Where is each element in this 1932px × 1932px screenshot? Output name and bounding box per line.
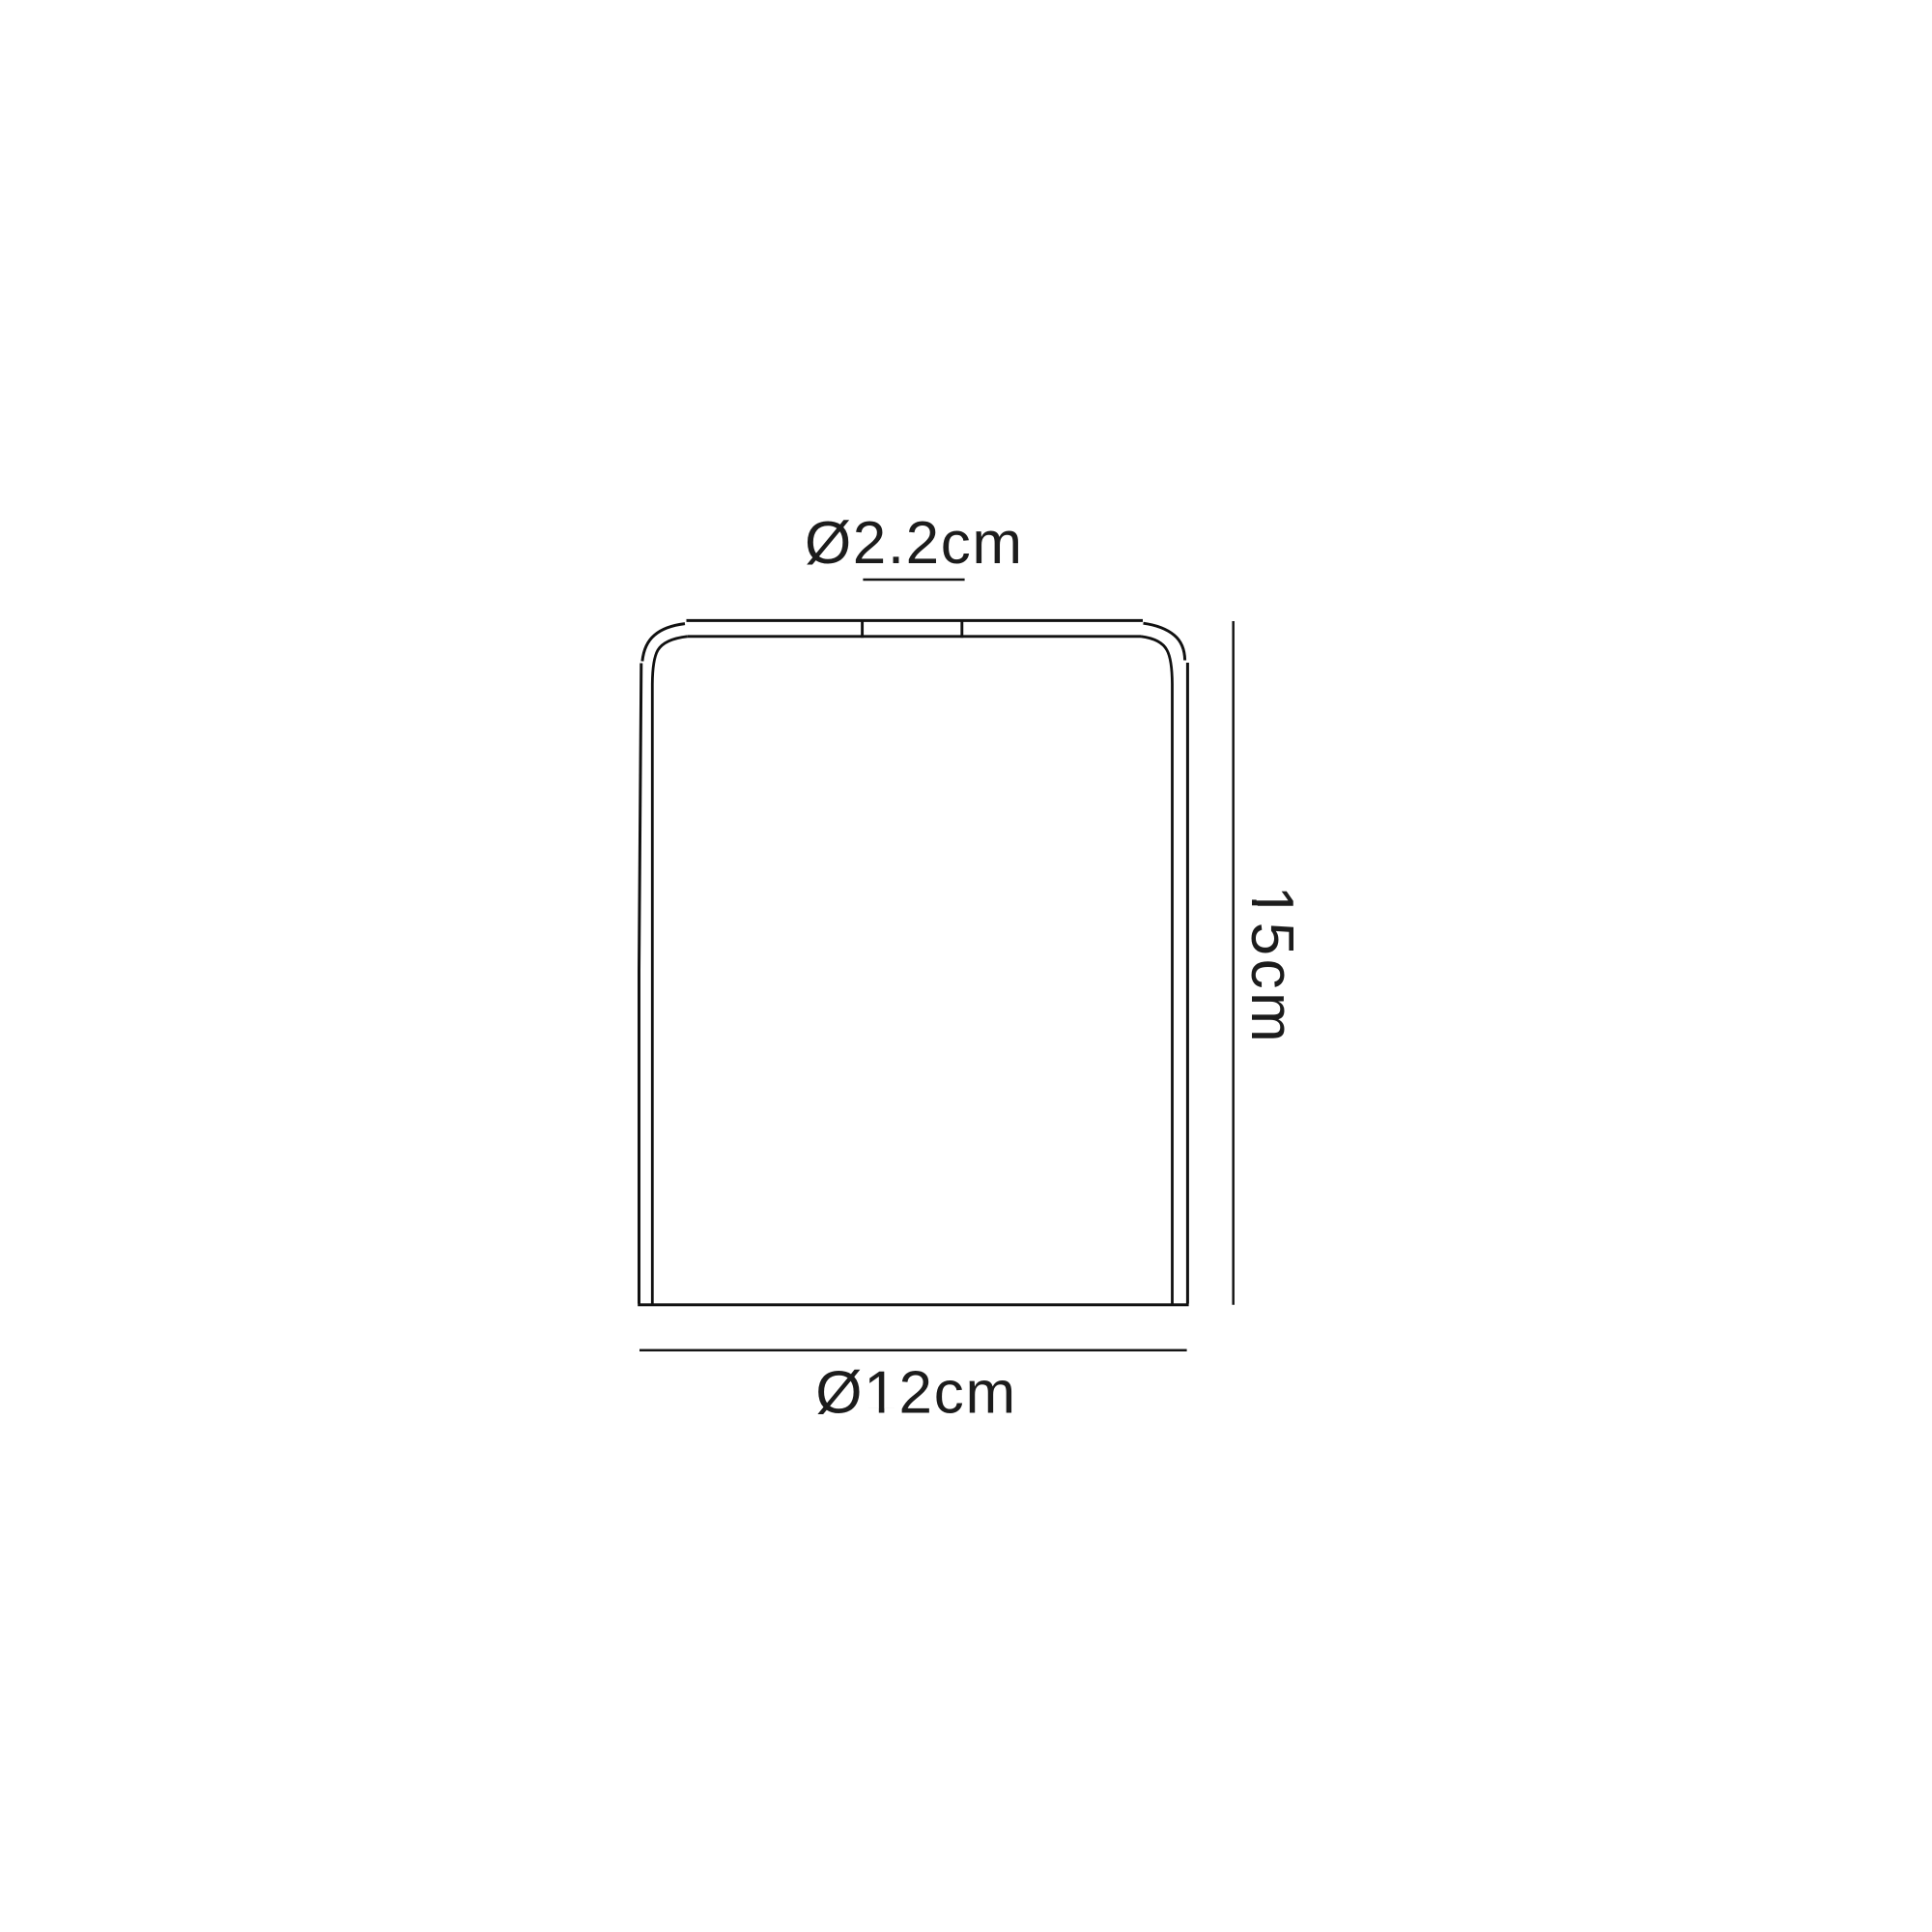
svg-text:15cm: 15cm <box>1238 886 1305 1046</box>
svg-text:Ø12cm: Ø12cm <box>815 1360 1017 1427</box>
svg-text:Ø2.2cm: Ø2.2cm <box>805 510 1024 577</box>
